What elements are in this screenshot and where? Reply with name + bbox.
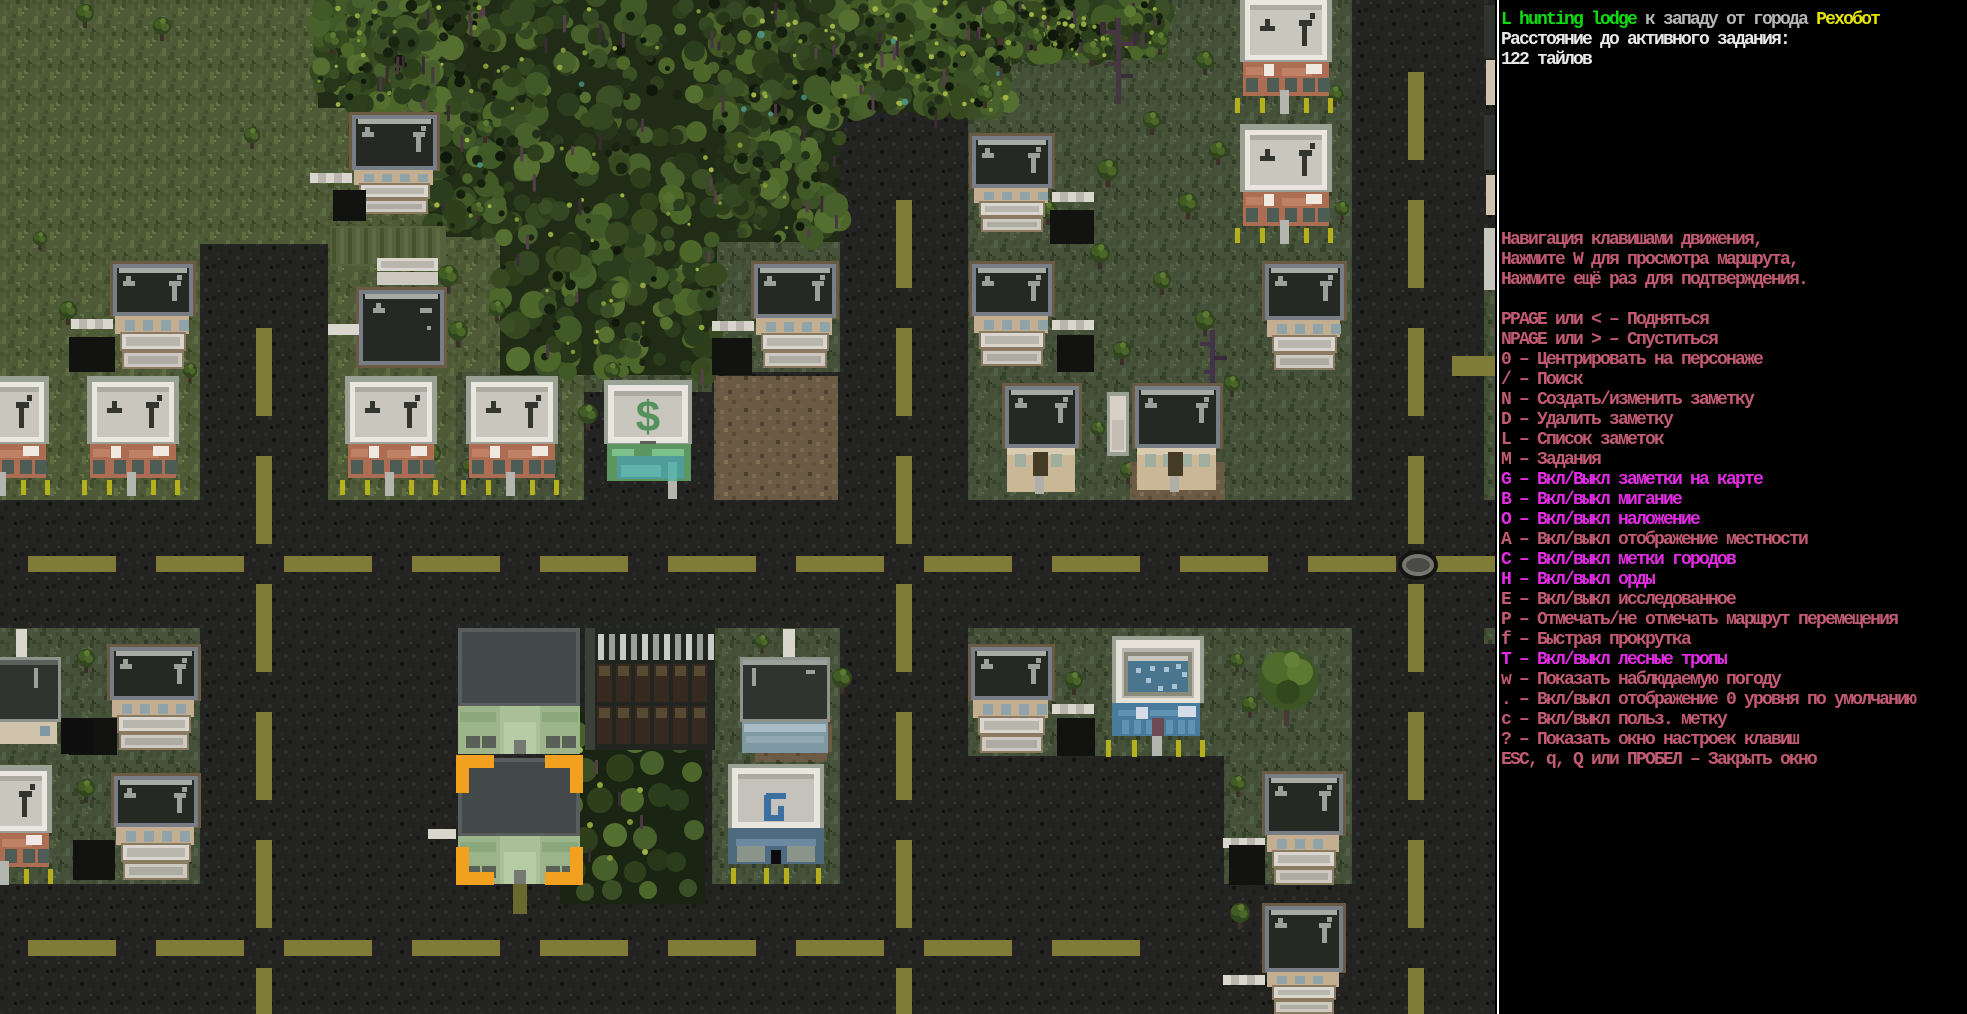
svg-text:$: $ (635, 395, 661, 445)
